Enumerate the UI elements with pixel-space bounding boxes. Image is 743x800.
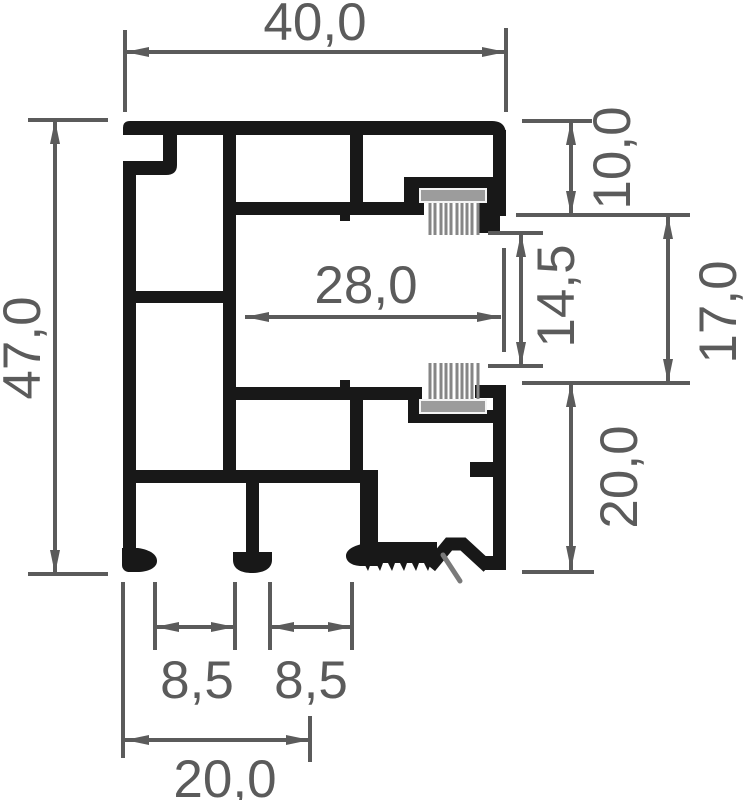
dimension-bottom-slot-right: 8,5 (270, 582, 352, 710)
dim-label-left-height: 47,0 (0, 296, 52, 399)
profile-mid-wall (223, 133, 236, 483)
dim-label-bottom-slot-left: 8,5 (160, 651, 234, 710)
dim-label-middle-depth: 28,0 (314, 256, 417, 315)
profile-left-foot (122, 548, 157, 572)
dimension-bottom-slot-left: 8,5 (155, 582, 235, 710)
profile-serration (358, 552, 437, 571)
dim-label-right-inner: 14,5 (527, 244, 586, 347)
profile-lower-divider (133, 470, 372, 483)
profile-upper-nub (340, 214, 350, 221)
brush-plate-top (420, 189, 486, 202)
profile-cross-section-drawing: 40,0 47,0 28,0 10,0 14,5 17,0 20,0 (0, 0, 743, 800)
dim-label-right-bottom: 20,0 (590, 425, 649, 528)
dim-label-top-width: 40,0 (263, 0, 366, 52)
profile-upper-left-divider (136, 291, 223, 303)
dimension-right-bottom: 20,0 (522, 383, 649, 572)
dim-label-bottom-width: 20,0 (173, 750, 276, 800)
profile-lower-nub (340, 380, 350, 388)
notch-leader-line (443, 555, 460, 581)
profile-drawing-canvas: 40,0 47,0 28,0 10,0 14,5 17,0 20,0 (0, 0, 743, 800)
brush-seal-top (420, 189, 486, 235)
profile-right-wall-lower (493, 385, 506, 570)
brush-plate-bottom (420, 400, 486, 413)
dimension-left-height: 47,0 (0, 120, 108, 574)
profile-upper-divider (350, 133, 363, 215)
dim-label-right-top: 10,0 (583, 106, 642, 209)
profile-stem (246, 483, 259, 555)
profile-upper-inner-wall (236, 202, 412, 215)
dim-label-bottom-slot-right: 8,5 (274, 651, 348, 710)
profile-lower-arm-wall (236, 387, 412, 400)
dimension-top-width: 40,0 (125, 0, 506, 112)
profile-left-wall (123, 161, 136, 553)
profile-stem-foot (233, 552, 272, 573)
profile-right-tab (470, 462, 495, 477)
dim-label-right-span: 17,0 (689, 260, 743, 363)
profile-notch-band (430, 544, 488, 567)
dimension-right-top: 10,0 (516, 106, 690, 215)
dimension-middle-depth: 28,0 (245, 248, 504, 352)
brush-bristles-bottom (430, 363, 478, 405)
profile-top-bar (123, 121, 506, 135)
profile-connector-wall (350, 400, 363, 472)
profile-bottom-right-corner (484, 556, 506, 570)
